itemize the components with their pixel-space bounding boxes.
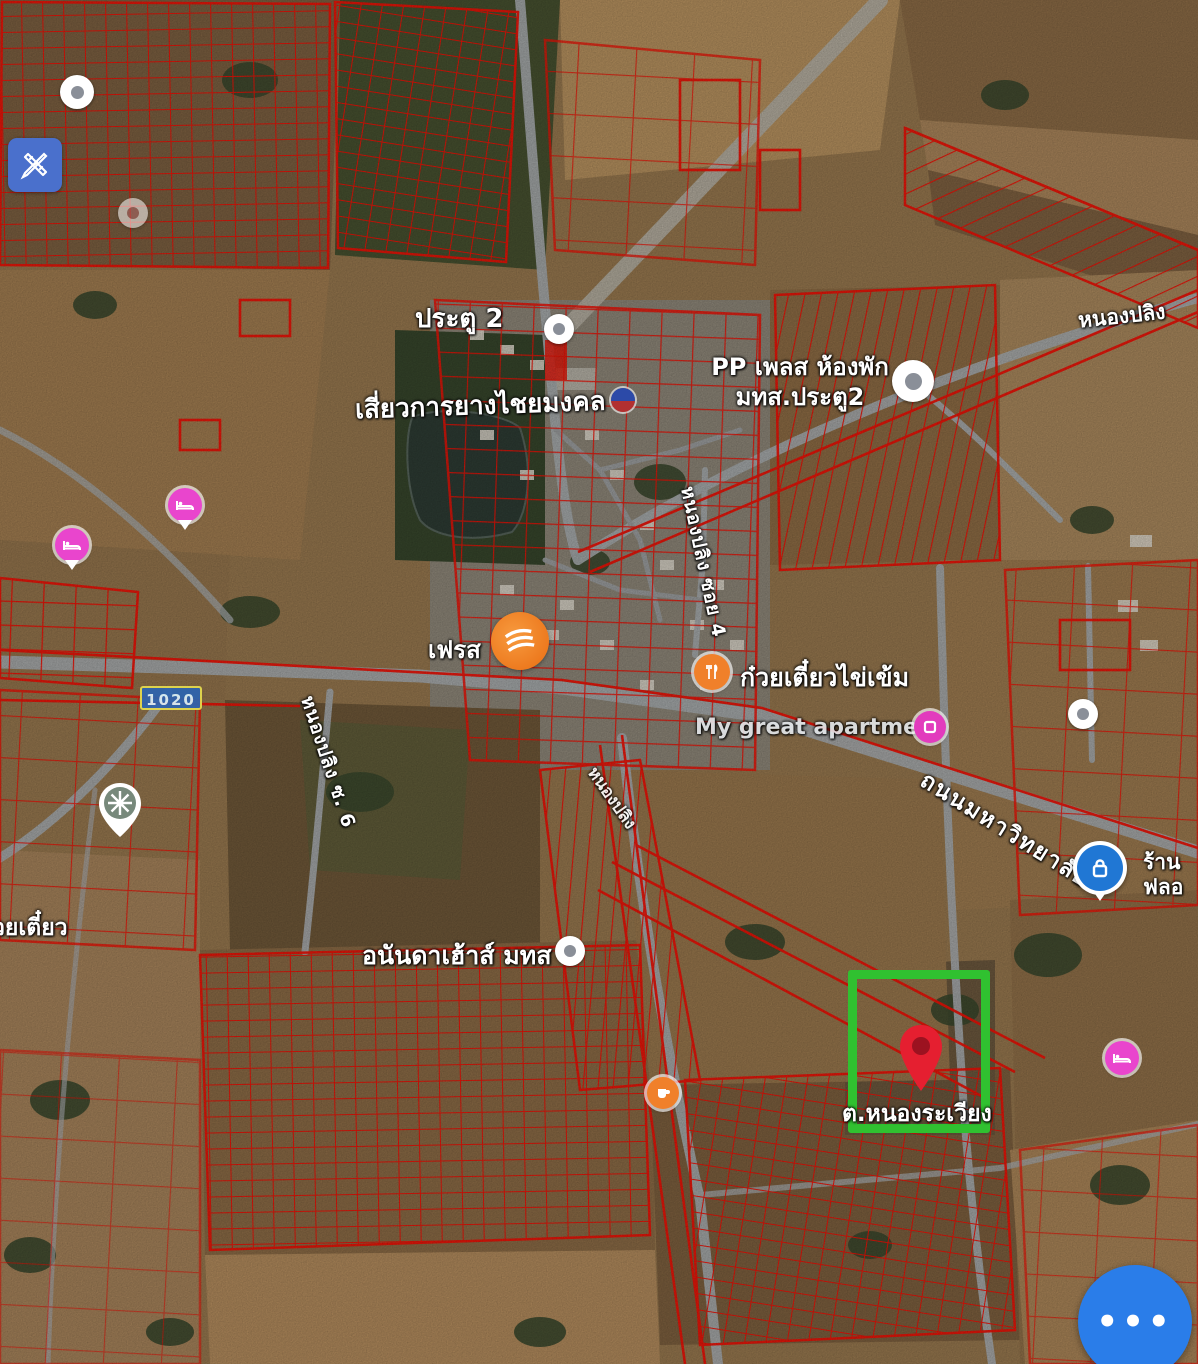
fork-knife-icon xyxy=(704,664,720,680)
faded-place-pin[interactable] xyxy=(118,198,148,228)
map-canvas[interactable]: ประตู 2 เสี่ยวการยางไชยมงคล PP เพลส ห้อง… xyxy=(0,0,1198,1364)
logo-stripes-icon xyxy=(501,625,540,658)
pin-tail xyxy=(1093,891,1107,901)
store-pin[interactable] xyxy=(914,711,946,743)
pencil-ruler-icon xyxy=(18,148,52,182)
route-badge: 1020 xyxy=(140,686,202,710)
cafe-pin[interactable] xyxy=(647,1077,679,1109)
pin-tail xyxy=(178,520,192,530)
place-dot-pin[interactable] xyxy=(555,936,585,966)
destination-pin-icon[interactable] xyxy=(899,1024,943,1092)
lodging-pin[interactable] xyxy=(55,528,89,562)
grain-overlay xyxy=(0,0,1198,1364)
place-dot-pin[interactable] xyxy=(1068,699,1098,729)
lock-pin-inner xyxy=(1077,845,1123,891)
place-dot-pin[interactable] xyxy=(60,75,94,109)
square-icon xyxy=(923,720,937,734)
place-dot-pin[interactable] xyxy=(892,360,934,402)
temple-pin[interactable] xyxy=(97,782,143,838)
more-options-dots: ••• xyxy=(1096,1302,1173,1342)
supermarket-logo-pin[interactable] xyxy=(491,612,549,670)
lock-shop-pin[interactable] xyxy=(1073,841,1127,895)
edit-tools-button[interactable] xyxy=(8,138,62,192)
padlock-icon xyxy=(1091,858,1109,878)
lodging-pin[interactable] xyxy=(1105,1041,1139,1075)
restaurant-pin[interactable] xyxy=(694,654,730,690)
pin-tail xyxy=(65,560,79,570)
satellite-imagery xyxy=(0,0,1198,1364)
lodging-pin[interactable] xyxy=(168,488,202,522)
bed-icon xyxy=(176,498,194,512)
bed-icon xyxy=(1113,1051,1131,1065)
poi-pin-blue-red[interactable] xyxy=(611,388,635,412)
place-dot-pin[interactable] xyxy=(544,314,574,344)
bed-icon xyxy=(63,538,81,552)
cup-icon xyxy=(656,1087,670,1100)
